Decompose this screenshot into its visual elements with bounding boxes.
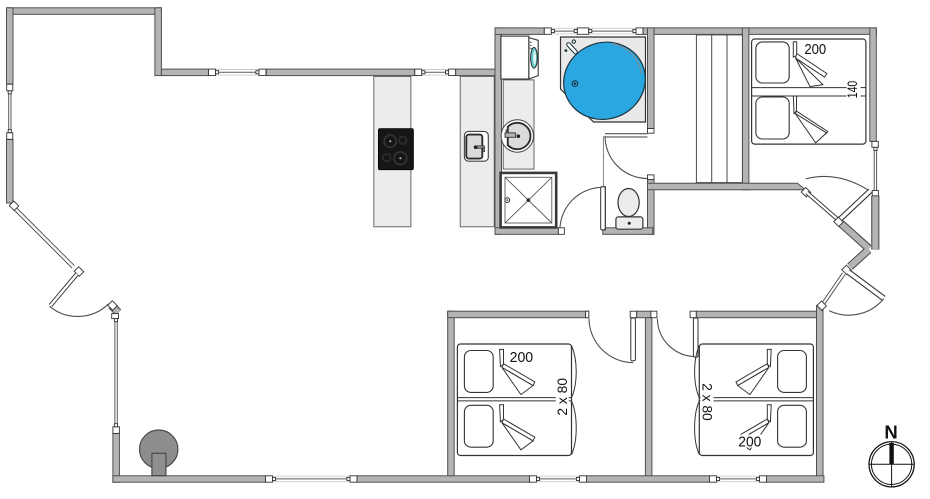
svg-text:2 x 80: 2 x 80 (700, 383, 716, 421)
svg-text:200: 200 (510, 349, 534, 366)
svg-text:200: 200 (738, 434, 761, 451)
svg-text:140: 140 (844, 81, 860, 99)
svg-text:200: 200 (804, 41, 826, 58)
svg-text:2 x 80: 2 x 80 (554, 378, 570, 416)
svg-text:N: N (884, 422, 897, 443)
